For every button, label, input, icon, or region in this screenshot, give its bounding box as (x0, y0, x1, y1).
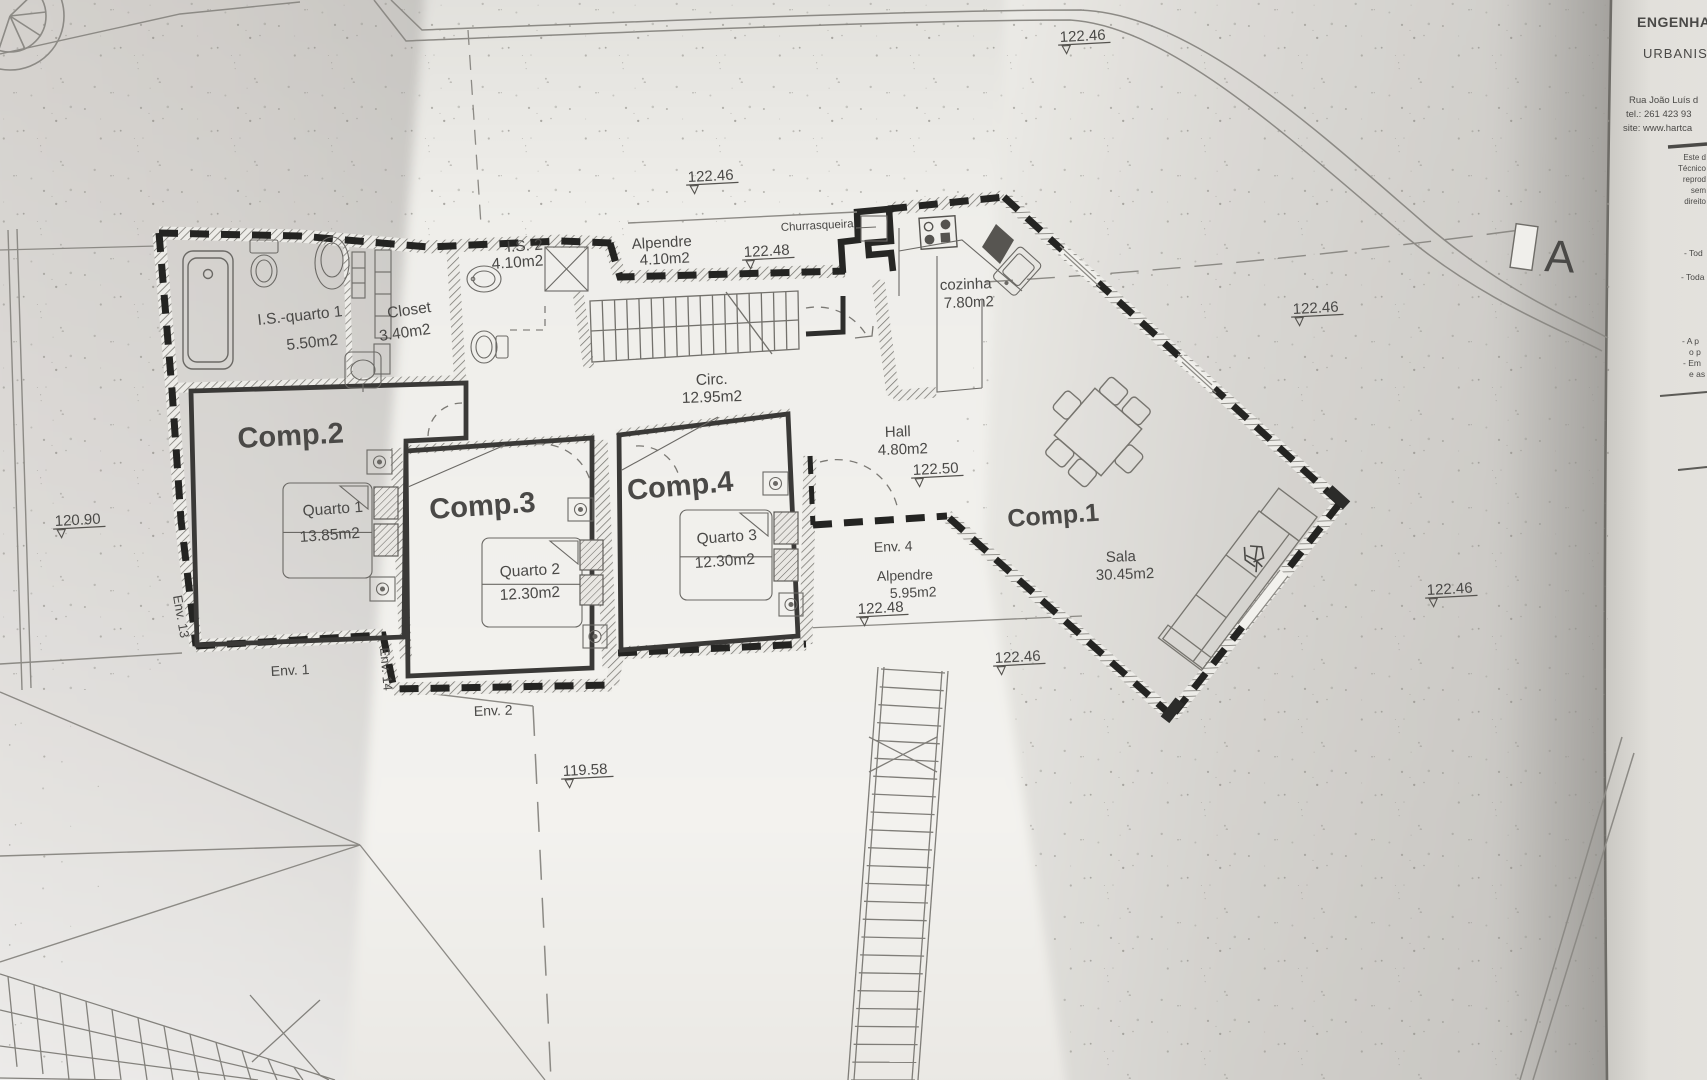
svg-text:12.30m2: 12.30m2 (499, 584, 560, 604)
svg-text:sem: sem (1691, 186, 1706, 195)
svg-text:4.80m2: 4.80m2 (878, 440, 929, 459)
svg-text:Este d: Este d (1683, 153, 1706, 162)
svg-text:ENGENHA: ENGENHA (1637, 14, 1707, 30)
svg-text:Env. 2: Env. 2 (474, 702, 513, 719)
svg-text:- Tod: - Tod (1684, 248, 1703, 258)
svg-text:Comp.2: Comp.2 (237, 417, 345, 455)
svg-text:Hall: Hall (885, 423, 911, 441)
svg-text:tel.: 261 423 93: tel.: 261 423 93 (1626, 109, 1692, 120)
svg-text:A: A (1543, 230, 1576, 283)
svg-text:site: www.hartca: site: www.hartca (1623, 123, 1693, 134)
svg-text:7.80m2: 7.80m2 (944, 293, 995, 312)
svg-text:30.45m2: 30.45m2 (1096, 565, 1155, 584)
svg-text:e as: e as (1689, 369, 1705, 379)
svg-text:Quarto 2: Quarto 2 (499, 561, 560, 581)
svg-text:12.95m2: 12.95m2 (682, 388, 743, 407)
svg-text:- Em: - Em (1683, 358, 1701, 368)
svg-text:Alpendre: Alpendre (877, 566, 934, 584)
svg-text:4.10m2: 4.10m2 (491, 252, 544, 273)
svg-text:Env. 4: Env. 4 (874, 538, 913, 555)
svg-text:- Toda: - Toda (1681, 272, 1705, 282)
svg-text:Sala: Sala (1106, 548, 1137, 566)
svg-text:- A p: - A p (1682, 336, 1699, 346)
svg-text:Env. 1: Env. 1 (270, 661, 310, 679)
svg-text:Técnico: Técnico (1678, 164, 1707, 173)
svg-text:4.10m2: 4.10m2 (639, 249, 690, 269)
svg-text:URBANIS: URBANIS (1643, 46, 1707, 61)
svg-text:reprod: reprod (1683, 175, 1706, 184)
svg-text:direito: direito (1684, 197, 1706, 206)
svg-text:Rua João Luís d: Rua João Luís d (1629, 95, 1698, 106)
svg-text:cozinha: cozinha (940, 275, 993, 294)
svg-text:Circ.: Circ. (696, 371, 728, 389)
svg-text:o p: o p (1689, 347, 1701, 357)
